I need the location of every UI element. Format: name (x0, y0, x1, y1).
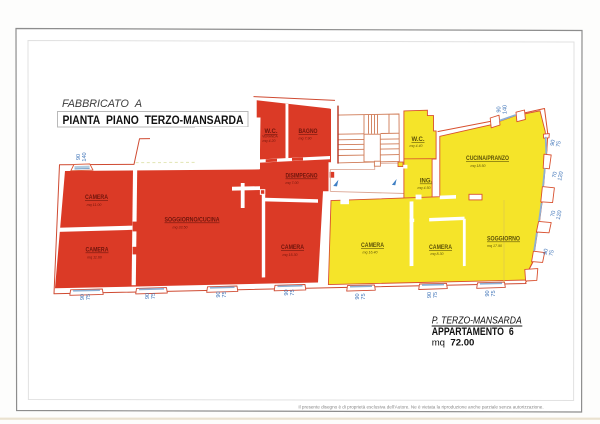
svg-text:140: 140 (503, 105, 509, 114)
svg-text:75: 75 (151, 293, 157, 299)
svg-text:mq 15.30: mq 15.30 (283, 253, 298, 257)
svg-text:mq 33.50: mq 33.50 (173, 226, 188, 230)
svg-text:CAMERA: CAMERA (281, 245, 305, 251)
svg-text:mq 18.50: mq 18.50 (471, 164, 486, 168)
svg-text:CAMERA: CAMERA (85, 195, 109, 201)
svg-text:FABBRICATO A: FABBRICATO A (62, 98, 142, 110)
svg-text:ING.: ING. (420, 179, 433, 185)
svg-text:75: 75 (491, 290, 497, 296)
svg-text:75: 75 (433, 292, 439, 298)
svg-text:75: 75 (361, 293, 367, 299)
svg-text:mq 8.30: mq 8.30 (431, 252, 444, 256)
svg-text:mq 72.00: mq 72.00 (432, 338, 475, 349)
svg-text:CAMERA: CAMERA (429, 245, 453, 251)
svg-text:mq 7.90: mq 7.90 (299, 137, 312, 141)
svg-text:SOGGIORNO: SOGGIORNO (487, 237, 520, 243)
svg-text:SOGGIORNO/CUCINA: SOGGIORNO/CUCINA (165, 218, 221, 224)
svg-text:mq 7.00: mq 7.00 (286, 181, 299, 185)
svg-text:PIANTA PIANO TERZO-MANSARDA: PIANTA PIANO TERZO-MANSARDA (63, 113, 244, 127)
svg-text:CAMERA: CAMERA (86, 248, 110, 254)
svg-text:mq 4.40: mq 4.40 (410, 144, 423, 148)
svg-text:75: 75 (86, 294, 92, 300)
svg-text:75: 75 (290, 289, 296, 295)
svg-text:mq 11.60: mq 11.60 (87, 256, 102, 260)
svg-text:mq 11.00: mq 11.00 (87, 203, 102, 207)
svg-text:BAGNO: BAGNO (299, 129, 318, 135)
svg-text:75: 75 (556, 140, 563, 147)
svg-text:mq 16.40: mq 16.40 (363, 251, 378, 255)
svg-text:CAMERA: CAMERA (361, 243, 385, 249)
svg-text:mq 4.20: mq 4.20 (263, 139, 276, 143)
svg-text:W.C.: W.C. (412, 137, 425, 143)
svg-text:VERANDA: VERANDA (262, 135, 278, 139)
svg-text:mq 4.50: mq 4.50 (418, 186, 431, 190)
svg-text:75: 75 (222, 291, 228, 297)
svg-text:75: 75 (549, 249, 556, 256)
svg-text:APPARTAMENTO 6: APPARTAMENTO 6 (432, 326, 514, 338)
svg-text:CUCINA/PRANZO: CUCINA/PRANZO (466, 156, 509, 162)
svg-text:140: 140 (82, 152, 88, 161)
svg-text:mq 17.90: mq 17.90 (487, 244, 502, 248)
svg-text:DISIMPEGNO: DISIMPEGNO (286, 174, 318, 180)
svg-text:P. TERZO-MANSARDA: P. TERZO-MANSARDA (432, 316, 522, 327)
svg-text:Il presente disegno è di propr: Il presente disegno è di proprietà esclu… (298, 405, 543, 410)
